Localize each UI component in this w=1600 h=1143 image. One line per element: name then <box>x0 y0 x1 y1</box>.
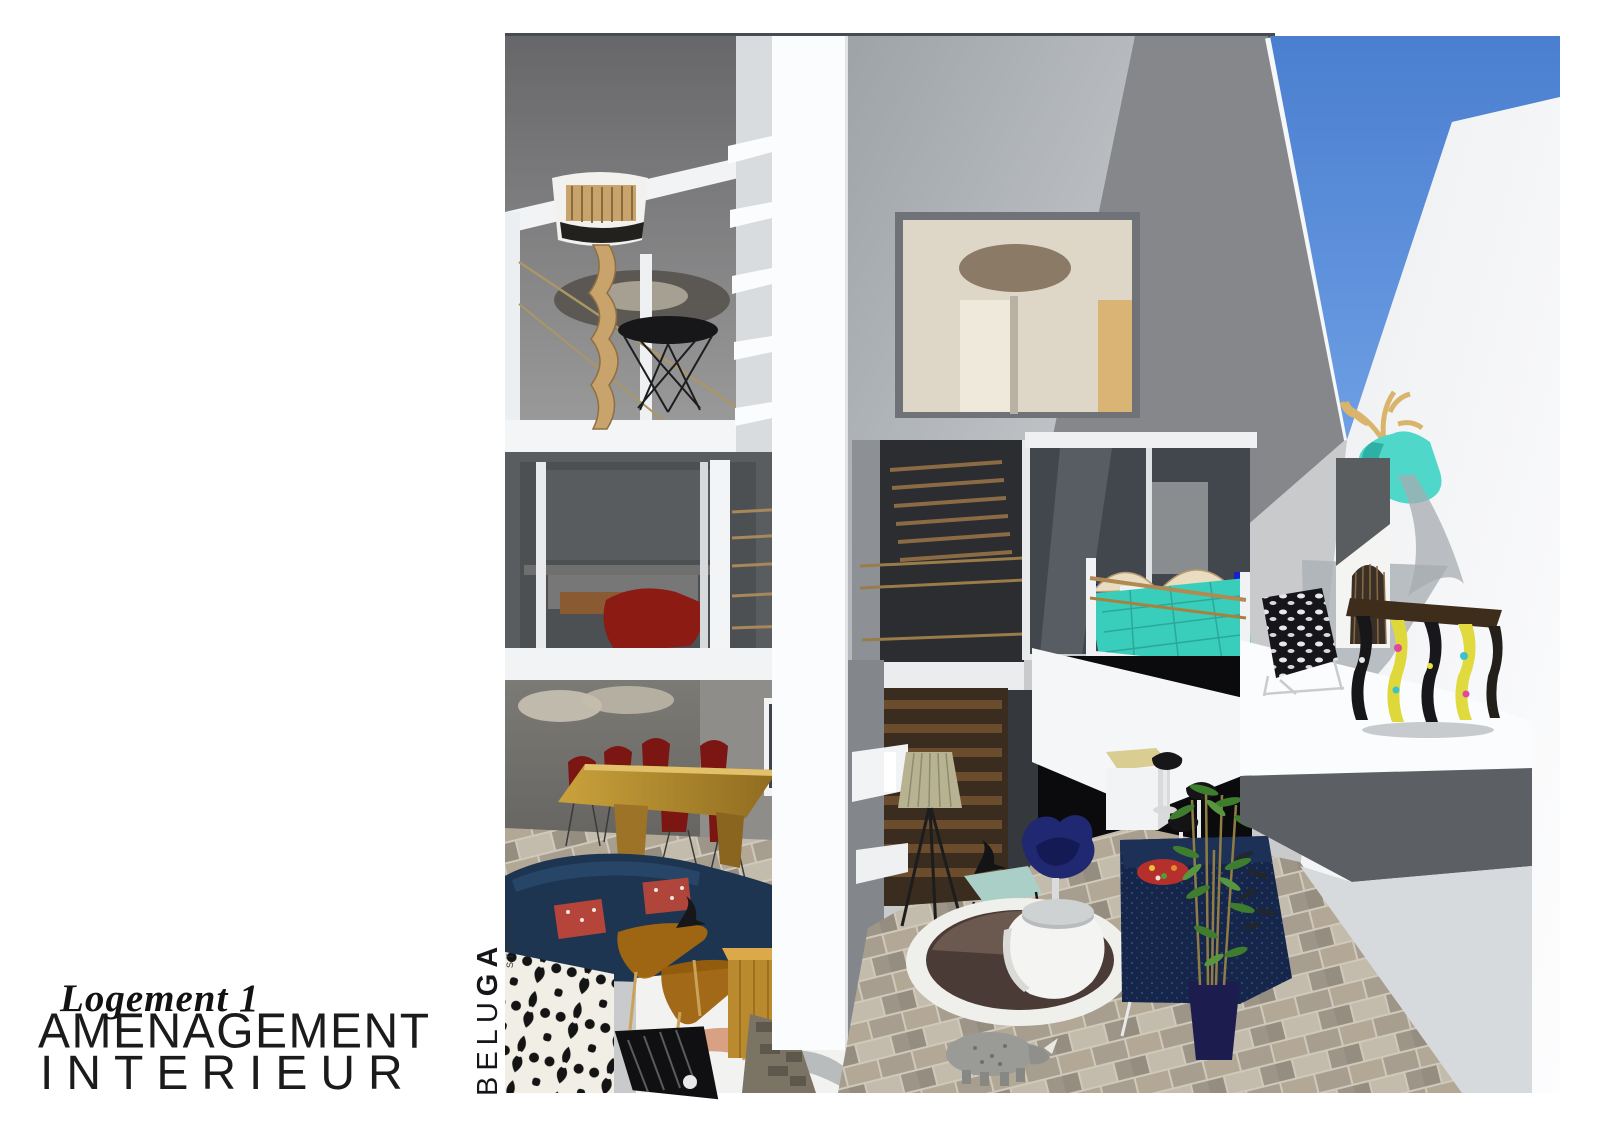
brand-logo: BELUGA <box>472 941 505 1096</box>
upper-room <box>505 36 772 456</box>
presentation-board: Logement 1 AMENAGEMENT INTERIEUR BELUGA … <box>0 0 1600 1143</box>
ceiling-light-recess <box>959 244 1071 292</box>
floor-slab <box>505 420 772 456</box>
project-title: Logement 1 <box>60 976 260 1021</box>
planter <box>1188 982 1240 1060</box>
lit-upper-room <box>895 212 1140 418</box>
render-image <box>0 0 1600 1143</box>
console-shadow <box>1362 722 1494 738</box>
warm-glow <box>1098 300 1132 412</box>
section-cut-wall <box>772 36 848 1050</box>
window-frame <box>710 460 730 680</box>
render-svg <box>0 0 1600 1143</box>
floral-cushion <box>1137 859 1189 885</box>
red-sofa <box>604 588 703 652</box>
damask-rug <box>505 952 614 1093</box>
brand-light: BELU <box>472 996 504 1096</box>
brand-bold: GA <box>472 941 504 997</box>
brand-tagline: STUDIO <box>505 916 515 968</box>
subtitle-line2: INTERIEUR <box>40 1046 416 1101</box>
